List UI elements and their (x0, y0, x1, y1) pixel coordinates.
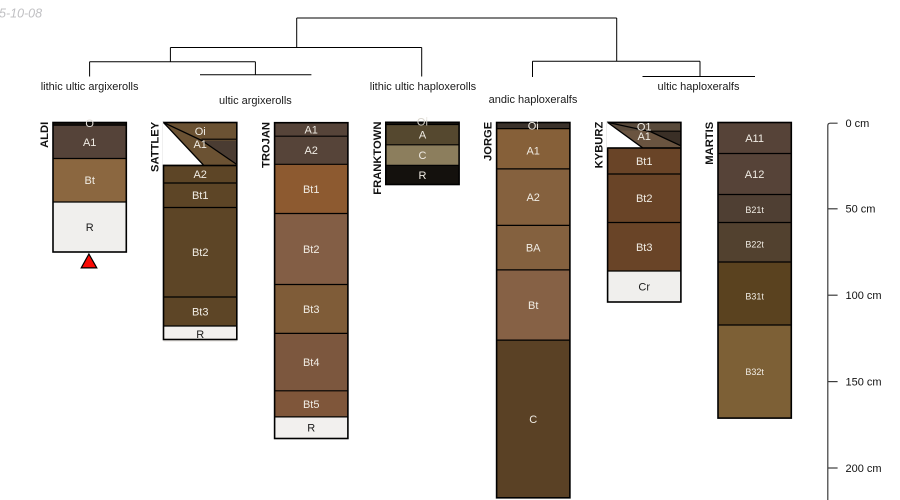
svg-text:A2: A2 (193, 169, 206, 181)
svg-text:0 cm: 0 cm (846, 118, 870, 130)
svg-text:Bt2: Bt2 (303, 244, 320, 256)
svg-text:lithic ultic haploxerolls: lithic ultic haploxerolls (370, 81, 477, 93)
svg-text:Bt2: Bt2 (192, 247, 209, 259)
svg-text:Bt5: Bt5 (303, 399, 320, 411)
svg-text:A2: A2 (304, 145, 317, 157)
svg-text:150 cm: 150 cm (846, 377, 882, 389)
svg-text:100 cm: 100 cm (846, 290, 882, 302)
svg-text:R: R (86, 222, 94, 234)
svg-text:TROJAN: TROJAN (261, 122, 273, 168)
svg-text:A1: A1 (83, 137, 96, 149)
svg-text:Bt: Bt (528, 300, 538, 312)
svg-text:C: C (529, 414, 537, 426)
svg-text:A1: A1 (304, 124, 317, 136)
svg-text:Oi: Oi (417, 117, 428, 129)
svg-text:Bt3: Bt3 (303, 304, 320, 316)
svg-text:B31t: B31t (745, 292, 764, 302)
svg-text:A1: A1 (193, 139, 206, 151)
svg-text:R: R (419, 170, 427, 182)
svg-text:Oi: Oi (195, 126, 206, 138)
svg-text:SATTLEY: SATTLEY (150, 121, 162, 172)
svg-text:ultic argixerolls: ultic argixerolls (219, 95, 292, 107)
svg-text:B22t: B22t (745, 240, 764, 250)
svg-text:Bt4: Bt4 (303, 357, 320, 369)
svg-text:Oi: Oi (528, 121, 539, 133)
svg-text:O: O (85, 118, 94, 130)
svg-text:Bt3: Bt3 (636, 242, 653, 254)
svg-text:lithic ultic argixerolls: lithic ultic argixerolls (41, 81, 139, 93)
svg-text:Bt2: Bt2 (636, 193, 653, 205)
svg-text:A11: A11 (745, 133, 764, 145)
svg-text:BA: BA (526, 243, 541, 255)
svg-text:KYBURZ: KYBURZ (594, 122, 606, 169)
svg-text:A: A (419, 130, 427, 142)
svg-text:Bt3: Bt3 (192, 307, 209, 319)
svg-text:5-10-08: 5-10-08 (0, 7, 42, 21)
svg-text:ultic haploxeralfs: ultic haploxeralfs (658, 81, 740, 93)
svg-text:MARTIS: MARTIS (704, 121, 716, 164)
svg-text:R: R (307, 423, 315, 435)
svg-text:Bt1: Bt1 (303, 184, 320, 196)
svg-text:50 cm: 50 cm (846, 204, 876, 216)
svg-text:Cr: Cr (638, 281, 650, 293)
svg-text:andic haploxeralfs: andic haploxeralfs (489, 94, 578, 106)
svg-text:A12: A12 (745, 169, 765, 181)
svg-text:C: C (419, 150, 427, 162)
svg-text:JORGE: JORGE (483, 121, 495, 161)
svg-text:ALDI: ALDI (39, 122, 51, 148)
svg-text:FRANKTOWN: FRANKTOWN (372, 122, 384, 195)
svg-text:A1: A1 (526, 145, 539, 157)
svg-text:Bt1: Bt1 (192, 190, 209, 202)
svg-text:Bt1: Bt1 (636, 156, 653, 168)
svg-text:R: R (196, 329, 204, 341)
svg-text:200 cm: 200 cm (846, 463, 882, 475)
svg-text:Bt: Bt (84, 175, 94, 187)
svg-text:B32t: B32t (745, 367, 764, 377)
svg-text:B21t: B21t (745, 205, 764, 215)
svg-text:A2: A2 (526, 192, 539, 204)
svg-text:A1: A1 (637, 131, 650, 143)
